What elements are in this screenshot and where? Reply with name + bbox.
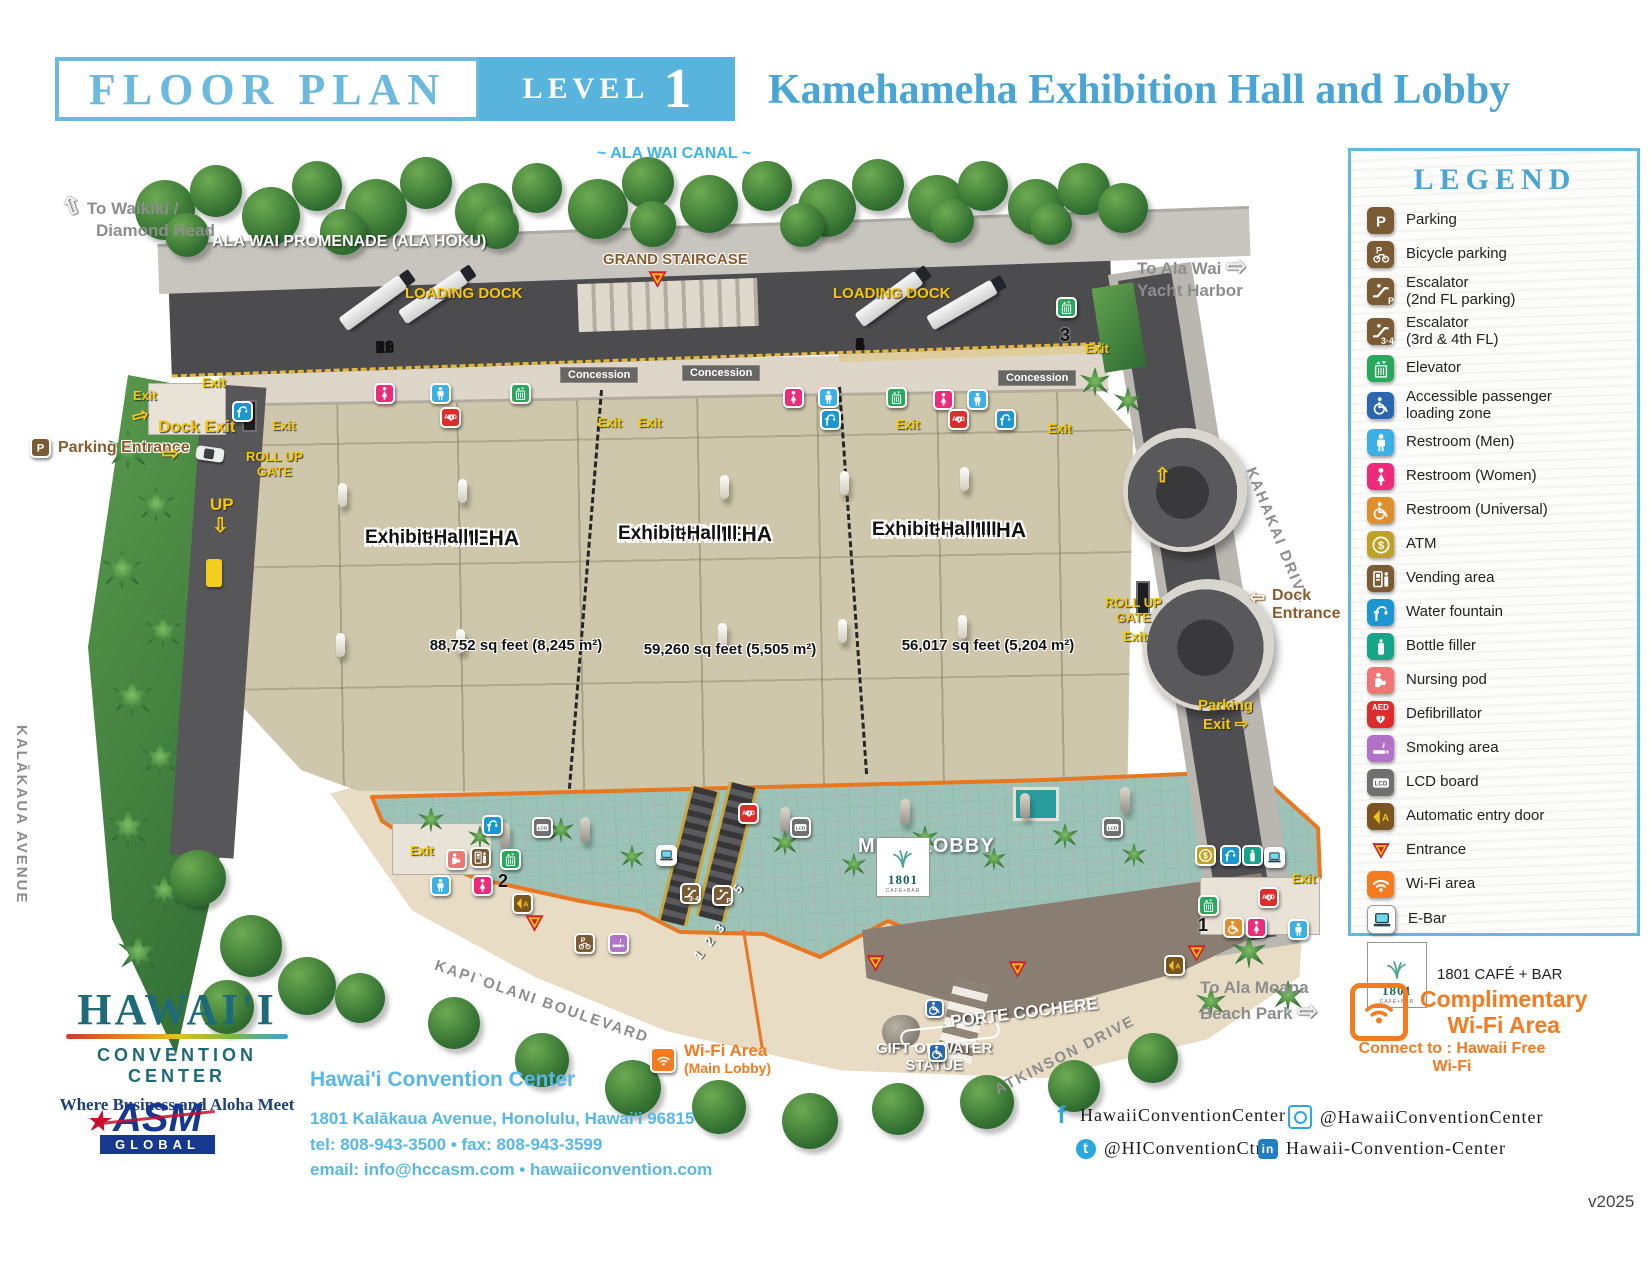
dock-exit-label: Dock Exit — [158, 417, 235, 437]
tree — [512, 163, 562, 213]
to-ala-wai-label: To Ala Wai ⇨ Yacht Harbor — [1137, 253, 1246, 300]
legend-item-label: Elevator — [1406, 360, 1461, 377]
legend-item-label: Wi-Fi area — [1406, 876, 1475, 893]
wifi-area-label: Wi-Fi Area — [684, 1041, 767, 1061]
road-up-arrow-icon: ⇧ — [1154, 463, 1171, 488]
map-canvas: ~ ALA WAI CANAL ~ ⇧ To Waikīkī / Diamond… — [20, 135, 1342, 1083]
wifi-area-icon — [1367, 871, 1394, 898]
version-label: v2025 — [1588, 1192, 1634, 1212]
roll-up-gate-west-label: ROLL UP GATE — [246, 449, 303, 479]
lcd-board-icon — [1367, 769, 1394, 796]
exit-label: Exit — [1123, 629, 1147, 644]
up-arrow-icon: ⇩ — [212, 513, 229, 538]
tree — [930, 199, 974, 243]
palm-tree — [142, 740, 178, 776]
floor-plan-title: FLOOR PLAN — [89, 64, 446, 115]
social-linkedin: in Hawaii-Convention-Center — [1258, 1138, 1506, 1159]
water-fountain-icon — [482, 815, 503, 836]
level-badge: LEVEL 1 — [479, 57, 735, 121]
escalator-34fl-icon: 3·4 — [1367, 318, 1394, 345]
legend-item-label: Bottle filler — [1406, 638, 1476, 655]
address-block: Hawai'i Convention Center 1801 Kalākaua … — [310, 1068, 712, 1183]
elevator-icon — [1056, 297, 1077, 318]
exit-label: Exit — [202, 375, 226, 390]
exit-label: Exit — [598, 415, 622, 430]
ala-moana-arrow-icon: ⇨ — [1297, 998, 1317, 1026]
parking-exit-arrow-icon: ⇨ — [1235, 714, 1248, 734]
dock-entrance-label: Dock Entrance — [1272, 587, 1340, 623]
legend-item-label: Automatic entry door — [1406, 808, 1544, 825]
auto-door-icon — [1164, 955, 1185, 976]
email-web: email: info@hccasm.com • hawaiiconventio… — [310, 1157, 712, 1183]
dock-number: 1 — [855, 335, 865, 355]
restroom-men-icon — [1367, 429, 1394, 456]
ala-wai-arrow-icon: ⇨ — [1226, 253, 1246, 281]
instagram-icon — [1288, 1105, 1312, 1129]
cafe-1801-lobby-logo: 1801 CAFÉ+BAR — [876, 837, 930, 897]
legend-item-bottle-filler: Bottle filler — [1367, 633, 1623, 660]
water-fountain-icon — [1220, 845, 1241, 866]
exit-label: Exit — [1048, 421, 1072, 436]
legend-title: LEGEND — [1367, 163, 1623, 197]
legend-item-label: Smoking area — [1406, 740, 1499, 757]
e-bar-icon — [1367, 905, 1396, 934]
defibrillator-icon: AED — [440, 407, 461, 428]
grand-staircase-label: GRAND STAIRCASE — [603, 251, 748, 268]
logo-wordmark: HAWAI'I — [58, 988, 296, 1032]
tree — [400, 157, 452, 209]
escalator-34-icon: 3·4 — [680, 883, 701, 904]
grand-staircase-entrance-icon — [645, 269, 669, 289]
tree — [872, 1083, 924, 1135]
atm-icon — [1367, 531, 1394, 558]
legend-item-lcd-board: LCD board — [1367, 769, 1623, 796]
dock-entrance-arrow-icon: ⇦ — [1250, 587, 1265, 608]
org-name: Hawai'i Convention Center — [310, 1068, 712, 1092]
elevator-icon — [510, 383, 531, 404]
bicycle-parking-icon — [1367, 241, 1394, 268]
palm-tree — [145, 613, 181, 649]
restroom-women-icon — [374, 383, 395, 404]
legend-item-wifi-area: Wi-Fi area — [1367, 871, 1623, 898]
palm-tree — [620, 845, 644, 869]
defibrillator-icon: AED — [948, 409, 969, 430]
dock-number: 7 — [375, 338, 385, 358]
floor-plan-title-box: FLOOR PLAN — [55, 57, 480, 121]
level-label: LEVEL — [523, 72, 650, 106]
exit-label: Exit — [638, 415, 662, 430]
accessible-loading-icon — [1367, 392, 1394, 419]
hall-3-area: 56,017 sq feet (5,204 m²) — [858, 637, 1118, 654]
waikiki-arrow-icon: ⇧ — [58, 190, 86, 223]
wifi-big-icon — [1350, 983, 1408, 1041]
loading-dock-label-east: LOADING DOCK — [833, 285, 951, 302]
entrance-icon — [1007, 959, 1028, 980]
exit-label: Exit — [410, 843, 434, 858]
legend-item-auto-door: Automatic entry door — [1367, 803, 1623, 830]
elevator-icon — [1367, 355, 1394, 382]
lcd-board-icon — [790, 817, 811, 838]
bottle-filler-icon — [1367, 633, 1394, 660]
palm-tree — [102, 550, 142, 590]
elevator-icon — [1198, 895, 1219, 916]
tree — [292, 161, 342, 211]
e-bar-icon — [1264, 847, 1285, 868]
wifi-line-2: Wi-Fi Area — [1447, 1012, 1560, 1038]
legend-item-label: Nursing pod — [1406, 672, 1487, 689]
legend-item-escalator-2fl: PEscalator(2nd FL parking) — [1367, 275, 1623, 308]
elevator-icon — [500, 849, 521, 870]
tree — [680, 175, 738, 233]
legend-item-label: Defibrillator — [1406, 706, 1482, 723]
kalakaua-avenue-label: KALĀKAUA AVENUE — [13, 725, 30, 904]
escalator-2fl-icon: P — [1367, 278, 1394, 305]
phone-fax: tel: 808-943-3500 • fax: 808-943-3599 — [310, 1132, 712, 1158]
legend-item-label: LCD board — [1406, 774, 1479, 791]
to-ala-moana-label: To Ala Moana Beach Park ⇨ — [1200, 978, 1317, 1025]
water-fountain-icon — [820, 409, 841, 430]
legend-item-accessible-loading: Accessible passengerloading zone — [1367, 389, 1623, 422]
legend-item-label: Entrance — [1406, 842, 1466, 859]
smoking-area-icon — [608, 933, 629, 954]
parking-icon — [1367, 207, 1394, 234]
restroom-women-icon — [933, 389, 954, 410]
defibrillator-icon: AED — [738, 803, 759, 824]
ala-wai-canal-label: ~ ALA WAI CANAL ~ — [597, 145, 751, 163]
linkedin-icon: in — [1258, 1139, 1278, 1159]
bottle-filler-icon — [1242, 845, 1263, 866]
roll-up-gate-east-label: ROLL UP GATE — [1105, 595, 1162, 625]
accessible-loading-icon — [928, 1043, 947, 1062]
legend-item-label: Restroom (Women) — [1406, 468, 1537, 485]
twitter-icon: t — [1076, 1139, 1096, 1159]
restroom-women-icon — [783, 387, 804, 408]
legend-item-label: Accessible passengerloading zone — [1406, 389, 1552, 422]
legend-item-smoking-area: Smoking area — [1367, 735, 1623, 762]
complimentary-wifi-box: Complimentary Wi-Fi Area — [1350, 983, 1587, 1041]
legend-item-label: ATM — [1406, 536, 1437, 553]
legend-items: ParkingBicycle parkingPEscalator(2nd FL … — [1367, 207, 1623, 934]
restroom-women-icon — [1367, 463, 1394, 490]
elevator-2-number: 2 — [498, 871, 508, 892]
atm-icon — [1195, 845, 1216, 866]
wifi-line-1: Complimentary — [1420, 986, 1587, 1012]
water-fountain-icon — [232, 401, 253, 422]
nursing-pod-icon — [1367, 667, 1394, 694]
accessible-loading-icon — [925, 999, 944, 1018]
restroom-women-icon — [472, 875, 493, 896]
parking-exit-label: Parking Exit ⇨ — [1198, 697, 1253, 734]
legend-item-label: Bicycle parking — [1406, 246, 1507, 263]
palm-tree — [1122, 843, 1146, 867]
logo-subtitle: CONVENTION CENTER — [58, 1045, 296, 1087]
entrance-icon — [524, 913, 545, 934]
nursing-pod-icon — [446, 849, 467, 870]
legend-item-entrance: Entrance — [1367, 837, 1623, 864]
tree — [782, 1093, 838, 1149]
legend-item-label: Escalator(2nd FL parking) — [1406, 275, 1516, 308]
parking-entrance-arrow-icon: ⇨ — [162, 441, 179, 466]
exit-label: Exit — [272, 418, 296, 433]
restroom-men-icon — [1288, 919, 1309, 940]
tree — [1030, 203, 1072, 245]
page-title: Kamehameha Exhibition Hall and Lobby — [768, 66, 1510, 114]
escalator-parking-icon: P — [712, 885, 733, 906]
entrance-icon — [1367, 837, 1394, 864]
legend-item-atm: ATM — [1367, 531, 1623, 558]
palm-tree — [1080, 367, 1110, 397]
tree — [428, 997, 480, 1049]
level-number: 1 — [663, 61, 691, 117]
palm-tree — [108, 807, 148, 847]
legend-item-e-bar: E-Bar — [1367, 905, 1623, 934]
lcd-board-icon — [532, 817, 553, 838]
entrance-icon — [865, 953, 886, 974]
palm-tree — [418, 807, 444, 833]
exit-label: Exit — [1085, 341, 1109, 356]
concession-label-2: Concession — [682, 365, 760, 381]
auto-door-icon — [512, 893, 533, 914]
palm-tree — [118, 933, 158, 973]
legend-item-parking: Parking — [1367, 207, 1623, 234]
defibrillator-icon: AED — [1258, 887, 1279, 908]
street-address: 1801 Kalākaua Avenue, Honolulu, Hawai'i … — [310, 1106, 712, 1132]
palm-tree — [138, 487, 174, 523]
legend-item-defibrillator: AEDDefibrillator — [1367, 701, 1623, 728]
lcd-board-icon — [1102, 817, 1123, 838]
vending-area-icon — [470, 847, 491, 868]
legend-item-escalator-34fl: 3·4Escalator(3rd & 4th FL) — [1367, 315, 1623, 348]
smoking-area-icon — [1367, 735, 1394, 762]
social-facebook: f HawaiiConventionCenter — [1052, 1105, 1286, 1126]
facebook-icon: f — [1052, 1106, 1072, 1126]
elevator-icon — [886, 387, 907, 408]
hall-2-area: 59,260 sq feet (5,505 m²) — [600, 641, 860, 658]
legend-item-label: Parking — [1406, 212, 1457, 229]
defibrillator-icon: AED — [1367, 701, 1394, 728]
palm-tree — [1114, 387, 1142, 415]
e-bar-icon — [656, 845, 677, 866]
tree — [1098, 183, 1148, 233]
loading-dock-label-west: LOADING DOCK — [405, 285, 523, 302]
water-fountain-icon — [995, 409, 1016, 430]
tree — [568, 179, 628, 239]
exit-label: Exit — [896, 417, 920, 432]
legend-item-label: E-Bar — [1408, 911, 1446, 928]
cafe-palm-icon — [888, 846, 918, 872]
legend-item-elevator: Elevator — [1367, 355, 1623, 382]
elevator-3-number: 3 — [1060, 325, 1070, 346]
restroom-men-icon — [430, 383, 451, 404]
bicycle-parking-icon — [574, 933, 595, 954]
water-fountain-icon — [1367, 599, 1394, 626]
promenade-label: ALA WAI PROMENADE (ALA HOKU) — [212, 233, 486, 251]
legend-item-label: Water fountain — [1406, 604, 1503, 621]
social-instagram: @HawaiiConventionCenter — [1288, 1105, 1544, 1129]
vending-icon — [1367, 565, 1394, 592]
legend-item-label: Restroom (Men) — [1406, 434, 1514, 451]
legend-item-bicycle-parking: Bicycle parking — [1367, 241, 1623, 268]
legend-item-restroom-universal: Restroom (Universal) — [1367, 497, 1623, 524]
tree — [1128, 1033, 1178, 1083]
exit-label: Exit — [1292, 871, 1316, 886]
restroom-men-icon — [818, 387, 839, 408]
concession-label-3: Concession — [998, 370, 1076, 386]
asm-global-logo: ★ASM GLOBAL — [100, 1100, 215, 1154]
tree — [780, 203, 824, 247]
social-twitter: t @HIConventionCtr — [1076, 1138, 1263, 1159]
up-label: UP — [210, 495, 234, 515]
palm-tree — [1232, 935, 1266, 969]
restroom-men-icon — [430, 875, 451, 896]
legend-item-water-fountain: Water fountain — [1367, 599, 1623, 626]
palm-tree — [112, 677, 152, 717]
tree — [742, 161, 792, 211]
wifi-connect-label: Connect to : Hawaii Free Wi-Fi — [1347, 1040, 1557, 1076]
legend-panel: LEGEND ParkingBicycle parkingPEscalator(… — [1348, 148, 1640, 936]
legend-item-label: Escalator(3rd & 4th FL) — [1406, 315, 1499, 348]
palm-tree — [1052, 823, 1078, 849]
tree — [170, 850, 226, 906]
tree — [220, 915, 282, 977]
restroom-universal-icon — [1223, 917, 1244, 938]
tree — [335, 973, 385, 1023]
parking-icon — [30, 437, 51, 458]
legend-item-label: Vending area — [1406, 570, 1494, 587]
tree — [630, 201, 676, 247]
elevator-1-number: 1 — [1198, 915, 1208, 936]
concession-label-1: Concession — [560, 367, 638, 383]
auto-door-icon — [1367, 803, 1394, 830]
legend-item-restroom-women: Restroom (Women) — [1367, 463, 1623, 490]
legend-item-nursing-pod: Nursing pod — [1367, 667, 1623, 694]
restroom-universal-icon — [1367, 497, 1394, 524]
floor-plan-page: FLOOR PLAN LEVEL 1 Kamehameha Exhibition… — [0, 0, 1650, 1275]
entrance-icon — [1186, 943, 1207, 964]
legend-item-restroom-men: Restroom (Men) — [1367, 429, 1623, 456]
restroom-women-icon — [1246, 917, 1267, 938]
restroom-men-icon — [967, 389, 988, 410]
legend-item-vending: Vending area — [1367, 565, 1623, 592]
to-waikiki-label: ⇧ To Waikīkī / Diamond Head — [62, 193, 215, 240]
legend-cafe-label: 1801 CAFÉ + BAR — [1437, 967, 1562, 984]
tree — [852, 159, 904, 211]
legend-item-label: Restroom (Universal) — [1406, 502, 1548, 519]
logo-rainbow-bar — [66, 1034, 288, 1039]
